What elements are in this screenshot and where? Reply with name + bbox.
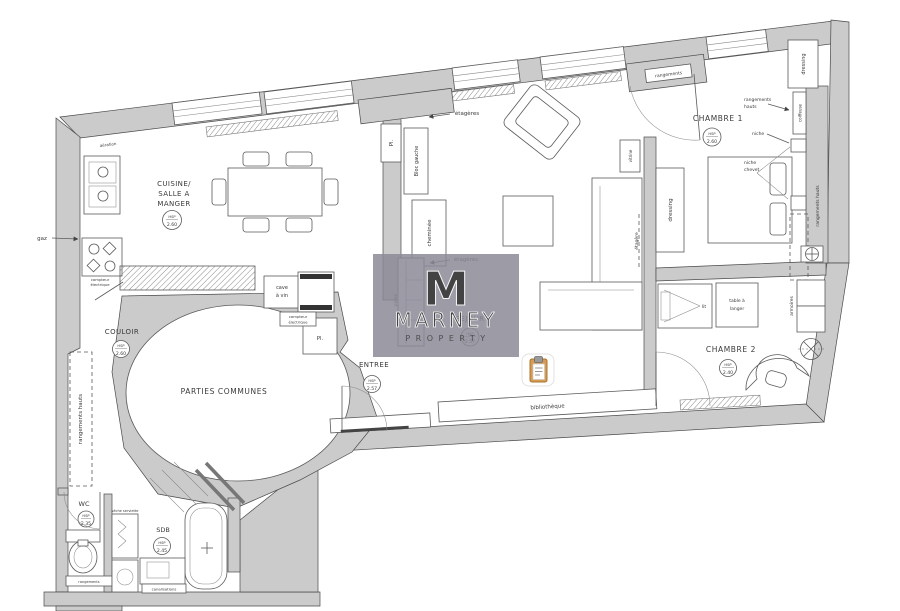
changing-table	[716, 283, 758, 327]
svg-text:étagères: étagères	[455, 110, 479, 117]
chair	[243, 218, 269, 232]
wine-cellar-box	[264, 276, 300, 308]
right-wall-upper	[827, 20, 849, 263]
hallway-wardrobe: rangements hauts	[70, 352, 92, 486]
toilet	[66, 530, 100, 573]
bottom-left-wall	[44, 592, 320, 606]
clipboard-icon[interactable]	[522, 354, 554, 386]
svg-text:HSP: HSP	[82, 514, 90, 518]
svg-text:2.60: 2.60	[167, 222, 177, 228]
svg-text:ENTREE: ENTREE	[359, 361, 389, 369]
room-label-parties-communes: PARTIES COMMUNES	[181, 387, 268, 396]
svg-text:WC: WC	[79, 500, 90, 508]
chambre2: CHAMBRE 2 HSP 2.40 lit table à langer ar…	[658, 280, 825, 390]
svg-text:2.45: 2.45	[157, 548, 167, 554]
armoires-label: armoires	[789, 295, 795, 315]
partition-chambre1-chambre2	[656, 261, 826, 281]
rangements-hauts-label: rangements hauts	[78, 394, 84, 444]
rangements-hauts-vertical: rangements hauts	[815, 185, 821, 227]
svg-text:niche: niche	[744, 160, 756, 166]
dressing-top-label: dressing	[801, 53, 807, 74]
wardrobe-armoires	[797, 280, 825, 306]
svg-text:HSP: HSP	[724, 363, 732, 367]
chair	[243, 152, 269, 166]
svg-text:gaz: gaz	[37, 236, 47, 242]
wc-cabinet-label: rangements	[78, 580, 99, 584]
aeration-label: aération	[100, 141, 118, 148]
rangements-hauts-annotation: rangements hauts	[744, 97, 789, 110]
pillow	[770, 203, 786, 235]
towel-dryer: sèche serviette	[112, 509, 139, 558]
svg-text:2.57: 2.57	[367, 386, 377, 392]
coiffeuse-label: coiffeuse	[798, 103, 803, 122]
hob	[82, 238, 122, 276]
svg-text:niche: niche	[752, 131, 764, 137]
towel-dryer-label: sèche serviette	[112, 509, 139, 513]
vitrine-label: vitrine	[628, 149, 633, 162]
room-label-chambre1: CHAMBRE 1 HSP 2.60	[693, 114, 743, 146]
corner-symbol-box	[801, 246, 823, 262]
closet-pl-label: Pl.	[389, 139, 395, 146]
wine-cellar-label-2: à vin	[276, 292, 288, 299]
svg-text:CUISINE/: CUISINE/	[157, 180, 191, 188]
partition-sejour-chambres	[644, 137, 656, 406]
floor-plan-page: rangements	[0, 0, 900, 611]
window	[264, 81, 354, 114]
svg-text:hauts: hauts	[744, 104, 757, 110]
watermark-brand: MARNEY	[395, 308, 498, 332]
room-label-cuisine: CUISINE/ SALLE A MANGER HSP 2.60	[157, 180, 191, 230]
sofa-horizontal	[540, 282, 642, 330]
bathtub	[185, 503, 227, 589]
svg-text:SDB: SDB	[156, 526, 170, 534]
svg-text:MANGER: MANGER	[157, 200, 190, 208]
wine-cellar-label-1: cave	[276, 285, 288, 291]
left-wall	[56, 118, 80, 592]
svg-text:2.60: 2.60	[116, 351, 126, 357]
svg-text:HSP: HSP	[368, 379, 376, 383]
lit-label: lit	[702, 304, 707, 310]
svg-text:SALLE A: SALLE A	[158, 190, 189, 198]
svg-text:électrique: électrique	[288, 320, 308, 325]
canalisations-label: canalisations	[152, 587, 177, 592]
room-label-sdb: SDB HSP 2.45	[154, 526, 171, 555]
niche-box	[791, 139, 806, 152]
niche-box	[791, 196, 806, 210]
fireplace-label: cheminée	[426, 219, 433, 247]
svg-text:table à: table à	[729, 297, 745, 304]
chair	[324, 179, 338, 205]
entry-step	[56, 606, 122, 611]
coffee-table	[503, 196, 553, 246]
floor-plan-svg: rangements	[0, 0, 900, 611]
window	[172, 92, 262, 125]
washer	[112, 560, 138, 592]
svg-text:HSP: HSP	[158, 541, 166, 545]
wardrobe-armoires	[797, 306, 825, 332]
chambre1-right-wall-fill	[806, 86, 828, 263]
vanity: canalisations	[140, 558, 186, 593]
svg-text:compteur: compteur	[289, 314, 308, 319]
svg-text:HSP: HSP	[708, 132, 716, 136]
watermark-subtitle: PROPERTY	[405, 334, 490, 343]
svg-text:HSP: HSP	[168, 215, 176, 219]
svg-text:HSP: HSP	[117, 344, 125, 348]
bloc-gauche-label: Bloc gauche	[414, 146, 420, 177]
svg-text:2.40: 2.40	[723, 370, 733, 376]
svg-text:COULOIR: COULOIR	[105, 328, 139, 336]
closet-pl-label-2: Pl.	[317, 336, 324, 342]
worktop	[120, 266, 255, 290]
svg-text:CHAMBRE 2: CHAMBRE 2	[706, 345, 756, 354]
pillow	[770, 163, 786, 195]
chair	[286, 152, 312, 166]
chair	[286, 218, 312, 232]
svg-text:rangements: rangements	[744, 97, 772, 103]
watermark: M MARNEY PROPERTY	[373, 254, 519, 357]
chair	[212, 179, 226, 205]
svg-text:chevet: chevet	[744, 167, 760, 173]
appliance-bar	[300, 274, 332, 279]
etagere-label: étagère	[633, 232, 640, 250]
window	[706, 30, 768, 59]
oven	[84, 156, 120, 214]
svg-text:langer: langer	[730, 306, 744, 312]
armchair	[502, 82, 583, 161]
dining-table	[228, 168, 322, 216]
svg-text:CHAMBRE 1: CHAMBRE 1	[693, 114, 743, 123]
dressing-label: dressing	[668, 198, 674, 221]
dining-set	[212, 152, 338, 232]
door-chambre2	[656, 352, 710, 406]
appliance-bar	[300, 305, 332, 310]
svg-text:2.60: 2.60	[707, 139, 717, 145]
niche-annotation: niche	[752, 131, 789, 143]
room-label-chambre2: CHAMBRE 2 HSP 2.40	[706, 345, 756, 377]
desk	[746, 355, 809, 390]
sejour-furniture: vitrine étagère	[502, 82, 642, 330]
electric-meter-label-2: électrique	[90, 282, 110, 287]
wc-top-wall-stub	[58, 488, 68, 495]
